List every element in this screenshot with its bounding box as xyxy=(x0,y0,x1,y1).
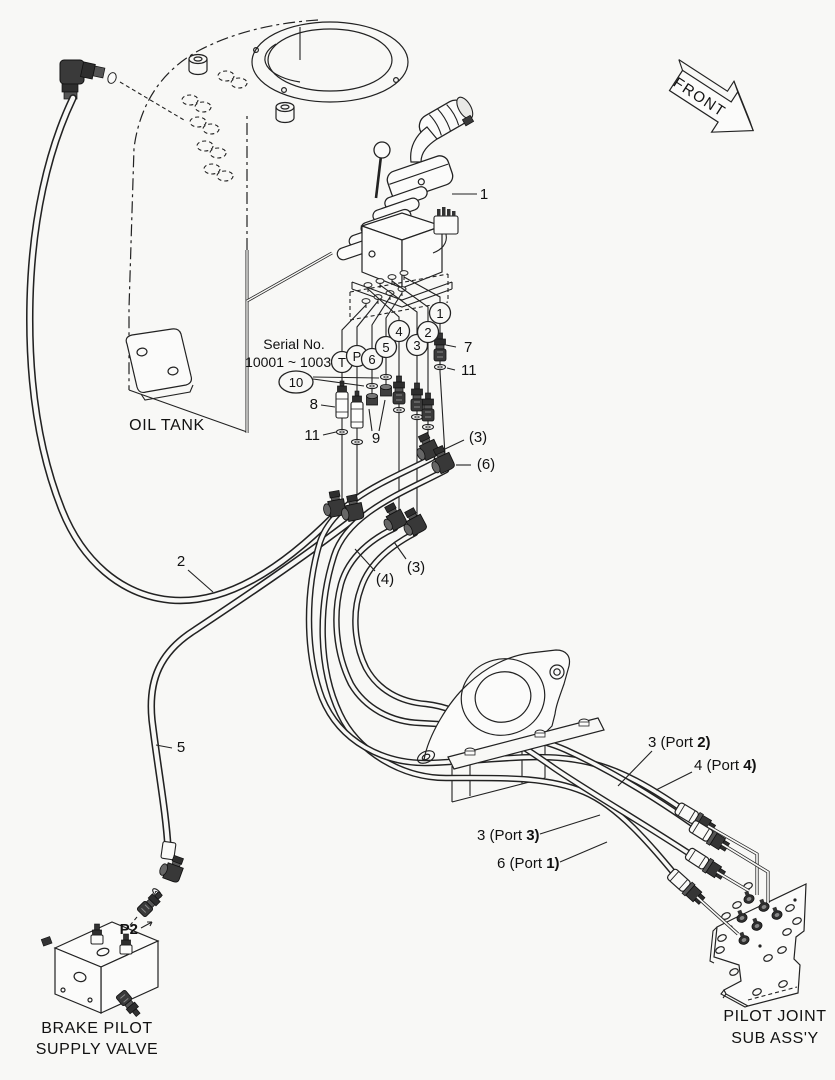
qty-label-3-mid: (3) xyxy=(407,559,425,576)
serial-note: Serial No. 10001 ~ 10031 xyxy=(245,336,339,370)
tank-plug-hole xyxy=(197,141,226,158)
port-callout-2: 2 xyxy=(418,322,439,343)
callout-8: 8 xyxy=(310,396,318,413)
oil-tank-label: OIL TANK xyxy=(129,417,205,434)
port-elbows xyxy=(321,431,456,538)
washer-10b xyxy=(381,374,392,379)
cap-nut-9a xyxy=(367,393,378,405)
qty-label-4-mid: (4) xyxy=(376,571,394,588)
serial-line2: 10001 ~ 10031 xyxy=(245,354,339,370)
washer-11-lower xyxy=(337,429,348,434)
port-callout-4: 4 xyxy=(389,321,410,342)
reducer-fitting-8a xyxy=(336,381,348,418)
tank-mounting-plate xyxy=(126,329,193,400)
tank-plug-hole xyxy=(190,117,219,134)
callout-2: 2 xyxy=(177,553,185,570)
serial-line1: Serial No. xyxy=(263,336,324,352)
svg-text:5: 5 xyxy=(382,340,389,355)
callout-10: 10 xyxy=(279,371,379,393)
svg-text:3: 3 xyxy=(413,338,420,353)
tank-plug-hole xyxy=(218,71,247,88)
qty-label-3-upper: (3) xyxy=(469,429,487,446)
item-callouts: 7 11 8 11 9 2 5 (3) (6) (3) (4) xyxy=(156,339,495,756)
svg-text:P: P xyxy=(353,349,362,364)
joystick-side-lever xyxy=(376,156,381,198)
svg-text:2: 2 xyxy=(424,325,431,340)
pilot-joint-plate: PILOT JOINT SUB ASS'Y xyxy=(697,826,827,1047)
port-connection-label-2: 3 (Port 3) xyxy=(477,827,540,844)
port-callout-1: 1 xyxy=(430,303,451,324)
cap-nut-9b xyxy=(381,384,392,396)
tank-boss xyxy=(276,103,294,123)
port-callouts: T P 6 5 4 3 2 1 xyxy=(332,303,451,373)
callout-7: 7 xyxy=(464,339,472,356)
brake-valve-label-line2: SUPPLY VALVE xyxy=(36,1041,159,1058)
tank-plug-hole xyxy=(182,95,211,112)
svg-text:T: T xyxy=(338,355,346,370)
washer xyxy=(352,439,363,444)
clamp-bolt xyxy=(465,748,475,755)
pilot-joint-label-line2: SUB ASS'Y xyxy=(731,1030,819,1047)
callout-1: 1 xyxy=(480,186,488,203)
pilot-piping-diagram-page: OIL TANK FRONT xyxy=(0,0,835,1080)
hose-coupling-port3 xyxy=(684,846,727,881)
tank-elbow-leader xyxy=(120,82,184,120)
tank-plug-hole xyxy=(204,164,233,181)
connector-port3 xyxy=(411,383,423,411)
tank-boss xyxy=(189,55,207,75)
joystick-ball-knob xyxy=(374,142,390,158)
clamp-bolt xyxy=(535,730,545,737)
port-connection-label-3: 6 (Port 1) xyxy=(497,855,560,872)
p2-arrow xyxy=(141,922,152,928)
port-connection-label-1: 4 (Port 4) xyxy=(694,757,757,774)
washer xyxy=(412,414,423,419)
front-arrow: FRONT xyxy=(655,50,770,151)
joystick-assembly: 1 xyxy=(336,94,488,307)
connector-port4 xyxy=(393,376,405,404)
svg-text:4: 4 xyxy=(395,324,402,339)
oil-tank: OIL TANK xyxy=(60,20,408,434)
clamp-bolt xyxy=(579,719,589,726)
callout-11-lower: 11 xyxy=(304,427,320,444)
p2-fitting-chain xyxy=(127,841,186,929)
brake-valve-label-line1: BRAKE PILOT xyxy=(41,1020,153,1037)
connector-port2 xyxy=(422,393,434,421)
tank-elbow-fitting xyxy=(60,60,184,120)
p2-label: P2 xyxy=(120,921,138,938)
pilot-piping-diagram: OIL TANK FRONT xyxy=(0,0,835,1080)
pilot-joint-label-line1: PILOT JOINT xyxy=(723,1008,826,1025)
brake-pilot-supply-valve: P2 BRAKE PILOT SUPPLY VALVE xyxy=(36,841,187,1058)
port-connection-label-0: 3 (Port 2) xyxy=(648,734,711,751)
svg-text:6: 6 xyxy=(368,352,375,367)
reducer-fitting-8b xyxy=(351,391,363,428)
washer-11-upper xyxy=(435,364,446,369)
callout-11-upper: 11 xyxy=(461,362,477,379)
svg-text:1: 1 xyxy=(436,306,443,321)
qty-label-6: (6) xyxy=(477,456,495,473)
callout-9: 9 xyxy=(372,430,380,447)
washer xyxy=(423,424,434,429)
oil-tank-flange xyxy=(252,22,408,102)
washer xyxy=(394,407,405,412)
callout-10-text: 10 xyxy=(289,375,303,390)
callout-5: 5 xyxy=(177,739,185,756)
washer-10a xyxy=(367,383,378,388)
